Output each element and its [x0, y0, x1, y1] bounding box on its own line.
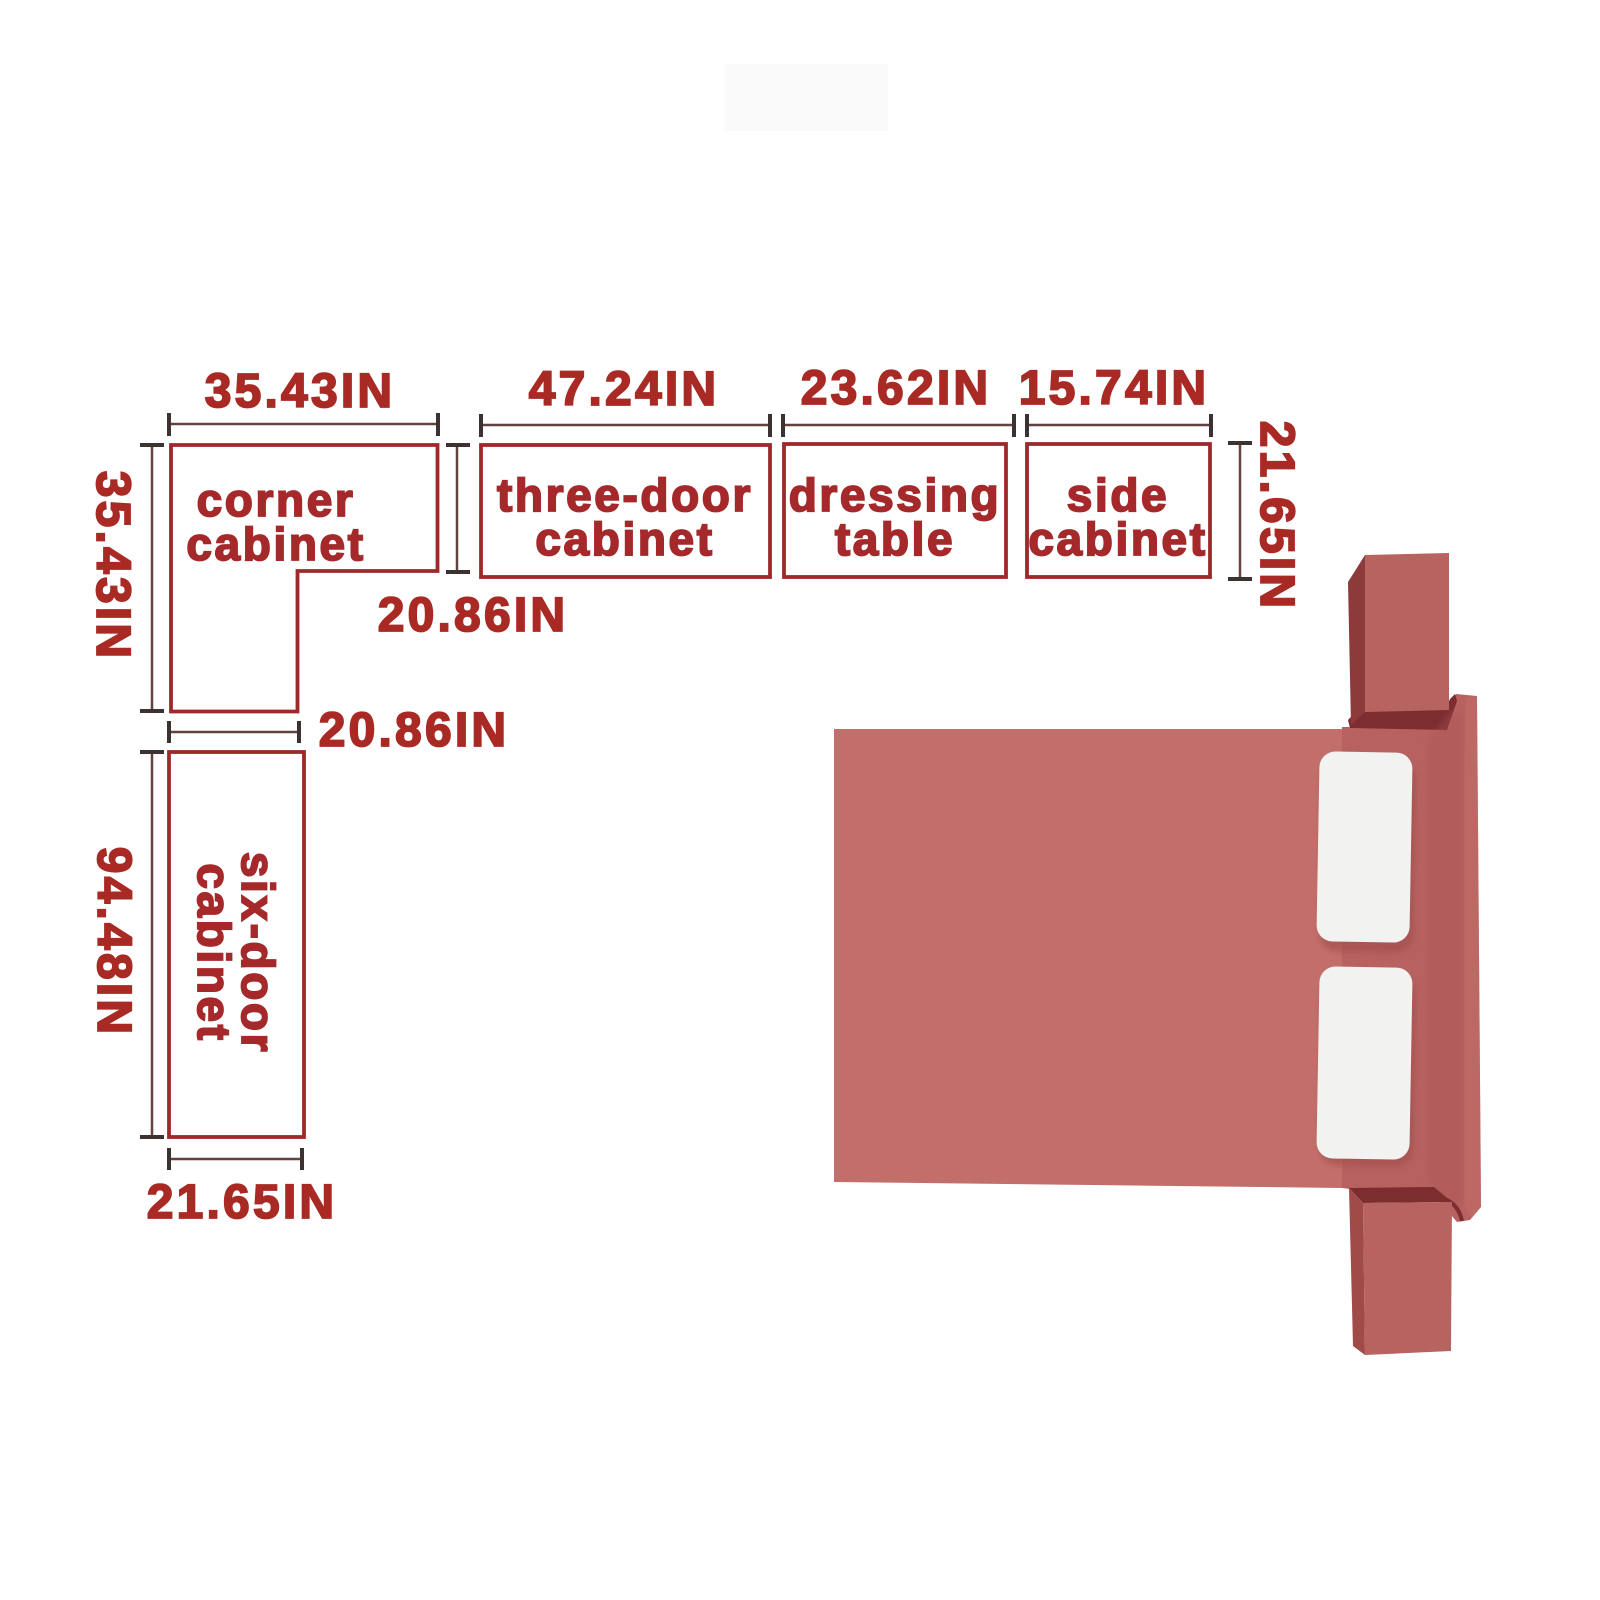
svg-text:table: table: [835, 513, 955, 565]
svg-text:21.65IN: 21.65IN: [147, 1176, 338, 1229]
svg-text:cabinet: cabinet: [535, 513, 714, 565]
svg-text:35.43IN: 35.43IN: [205, 365, 396, 418]
svg-text:23.62IN: 23.62IN: [801, 362, 992, 415]
svg-text:cabinet: cabinet: [1028, 513, 1207, 565]
svg-text:20.86IN: 20.86IN: [319, 704, 510, 757]
svg-text:21.65IN: 21.65IN: [1250, 421, 1303, 612]
svg-text:15.74IN: 15.74IN: [1019, 362, 1210, 415]
svg-text:47.24IN: 47.24IN: [529, 363, 720, 416]
svg-text:20.86IN: 20.86IN: [378, 589, 569, 642]
svg-text:cabinet: cabinet: [186, 518, 365, 570]
svg-text:cabinet: cabinet: [188, 863, 240, 1042]
svg-text:94.48IN: 94.48IN: [87, 847, 140, 1038]
svg-text:35.43IN: 35.43IN: [86, 471, 139, 662]
